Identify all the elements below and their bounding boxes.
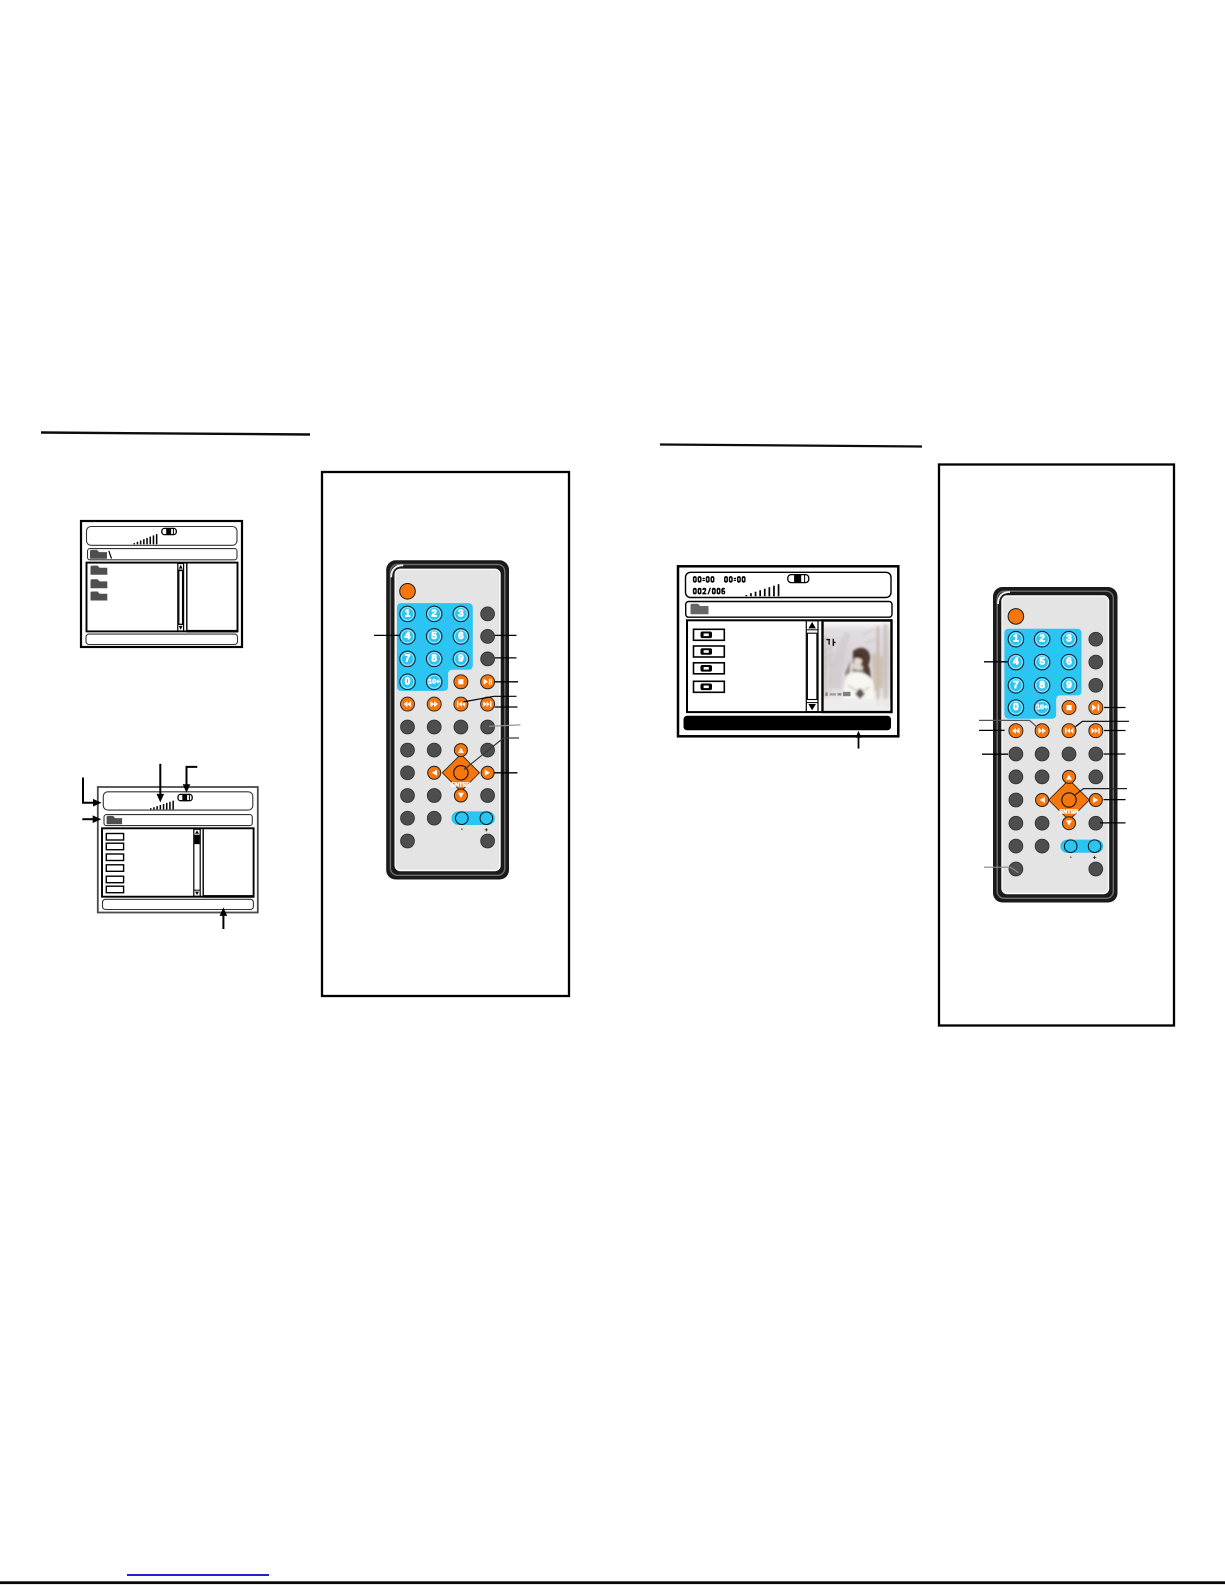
svg-text:ENTER: ENTER <box>1060 810 1079 816</box>
svg-text:4: 4 <box>1013 657 1019 668</box>
svg-text:7: 7 <box>405 653 411 664</box>
svg-text:0: 0 <box>405 676 411 687</box>
svg-text:10+: 10+ <box>1036 704 1048 711</box>
svg-text:9: 9 <box>1066 680 1072 691</box>
svg-text:10+: 10+ <box>428 678 440 685</box>
svg-text:6: 6 <box>1066 657 1072 668</box>
svg-text:5: 5 <box>431 631 437 642</box>
svg-text:6: 6 <box>458 631 464 642</box>
svg-text:-: - <box>461 826 463 833</box>
svg-text:3: 3 <box>458 608 464 619</box>
svg-text:8: 8 <box>1039 680 1045 691</box>
svg-text:2: 2 <box>431 608 437 619</box>
svg-text:1: 1 <box>405 608 411 619</box>
svg-text:5: 5 <box>1039 657 1045 668</box>
svg-text:3: 3 <box>1066 634 1072 645</box>
svg-text:+: + <box>484 827 488 834</box>
svg-text:4: 4 <box>405 631 411 642</box>
svg-text:7: 7 <box>1013 680 1019 691</box>
svg-text:0: 0 <box>1013 702 1019 713</box>
svg-text:ENTER: ENTER <box>451 782 470 788</box>
svg-text:1: 1 <box>1013 634 1019 645</box>
svg-text:2: 2 <box>1039 634 1045 645</box>
svg-text:+: + <box>1093 855 1097 862</box>
svg-text:9: 9 <box>458 653 464 664</box>
svg-text:-: - <box>1070 854 1072 861</box>
svg-text:8: 8 <box>431 653 437 664</box>
